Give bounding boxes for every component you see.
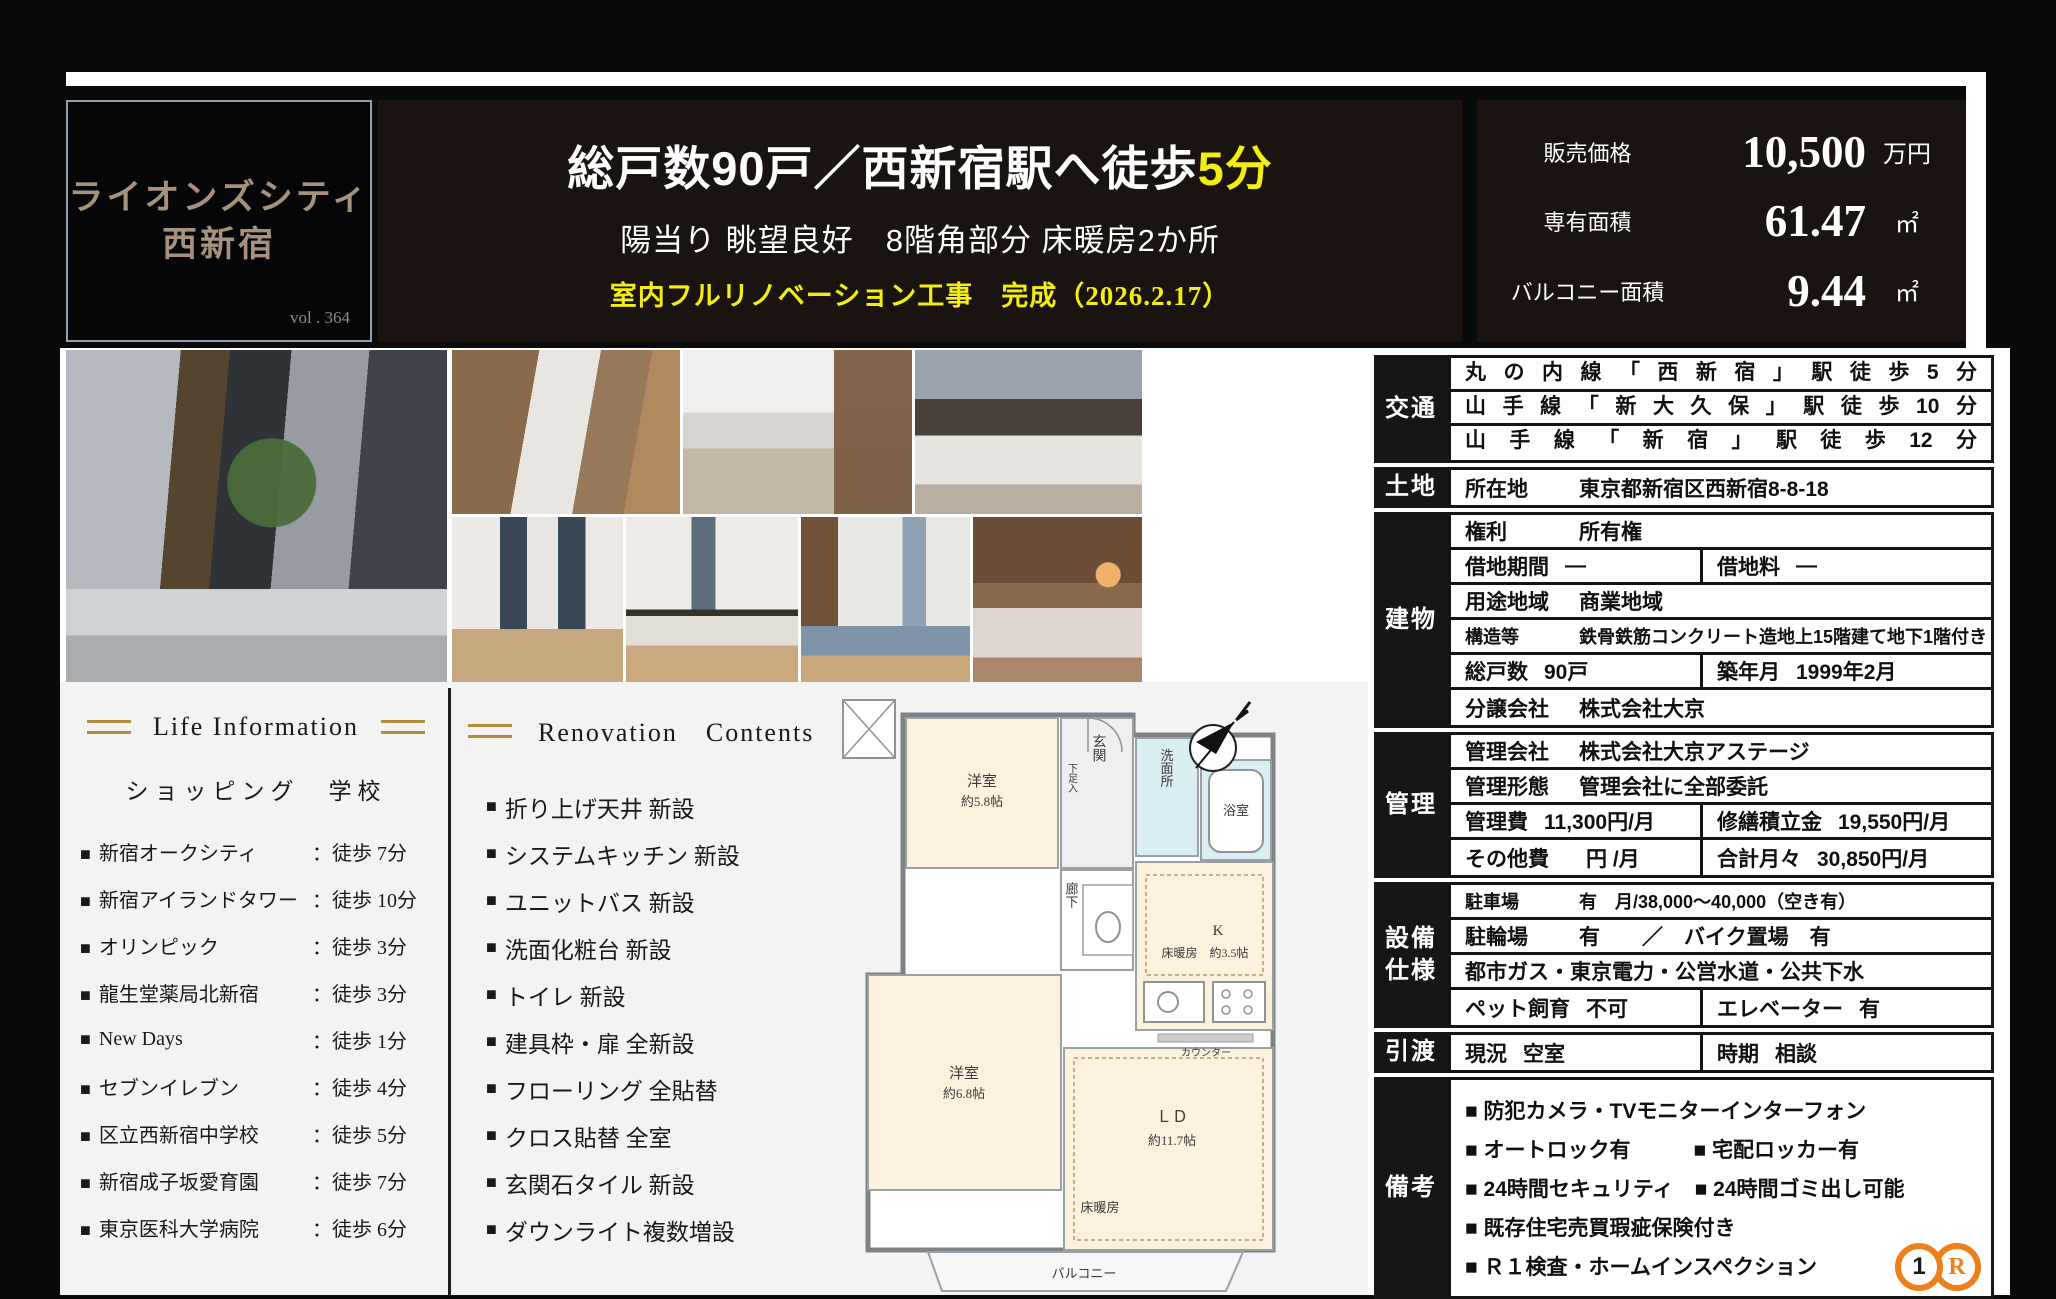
bullet-square-icon: ■ <box>486 796 497 817</box>
room1-size: 約5.8帖 <box>961 794 1003 809</box>
ld-size: 約11.7帖 <box>1148 1133 1196 1148</box>
spec-row: 管理費11,300円/月修繕積立金19,550円/月 <box>1451 805 1991 840</box>
life-info-item: ■新宿成子坂愛育園：徒歩 7分 <box>70 1157 442 1204</box>
bullet-square-icon: ■ <box>486 1172 497 1193</box>
renovation-item: ■玄関石タイル 新設 <box>486 1159 828 1206</box>
life-info-item: ■セブンイレブン：徒歩 4分 <box>70 1063 442 1110</box>
spec-group-rows: 丸の内線「西新宿」駅徒歩5分山手線「新大久保」駅徒歩10分山手線「新宿」駅徒歩1… <box>1448 355 1994 463</box>
spec-cell-value: 株式会社大京 <box>1579 693 1705 723</box>
headline-sub: 陽当り 眺望良好 8階角部分 床暖房2か所 <box>620 215 1220 260</box>
bullet-square-icon: ■ <box>486 843 497 864</box>
bathroom-label: 浴室 <box>1223 803 1249 818</box>
spec-cell-head: 管理費 <box>1465 806 1528 836</box>
spec-cell: 時期相談 <box>1703 1035 1991 1070</box>
entrance-label: 玄関 <box>1091 733 1107 763</box>
bullet-square-icon: ■ <box>80 1029 91 1049</box>
spec-cell-head: 借地期間 <box>1465 551 1549 581</box>
bullet-square-icon: ■ <box>80 844 91 864</box>
floor-plan: 洋室 約5.8帖 玄関 下足入 洗面所 浴室 廊下 K 床暖房 約3.5帖 カウ… <box>828 690 1373 1295</box>
spec-group-rows: 所在地東京都新宿区西新宿8-8-18 <box>1448 467 1994 508</box>
spec-cell-value: 有 月/38,000～40,000（空き有） <box>1579 888 1856 914</box>
spec-cell-head: 管理形態 <box>1465 771 1561 801</box>
renovation-item: ■クロス貼替 全室 <box>486 1112 828 1159</box>
bullet-square-icon: ■ <box>80 1220 91 1240</box>
spec-cell-head: 構造等 <box>1465 623 1561 649</box>
spec-cell-value: ― <box>1565 554 1586 578</box>
life-item-walk-time: ：徒歩 3分 <box>312 931 438 960</box>
spec-row: 所在地東京都新宿区西新宿8-8-18 <box>1451 470 1991 505</box>
bullet-square-icon: ■ <box>486 937 497 958</box>
stove-icon <box>1213 982 1265 1022</box>
photo-bedroom-1 <box>915 350 1142 514</box>
spec-cell: その他費 円 /月 <box>1451 840 1703 875</box>
spec-cell-head: ペット飼育 <box>1465 993 1570 1023</box>
spec-cell-value: 東京都新宿区西新宿8-8-18 <box>1579 473 1829 503</box>
renovation-item: ■ユニットバス 新設 <box>486 877 828 924</box>
life-item-name: ■New Days <box>80 1028 312 1051</box>
price-label: 販売価格 <box>1495 136 1680 168</box>
bullet-square-icon: ■ <box>486 1219 497 1240</box>
property-logo-box: ライオンズシティ 西新宿 vol . 364 <box>66 100 372 342</box>
renovation-item: ■システムキッチン 新設 <box>486 830 828 877</box>
property-name-line1: ライオンズシティ <box>68 174 369 221</box>
spec-cell-head: 分譲会社 <box>1465 693 1561 723</box>
spec-row: 権利所有権 <box>1451 515 1991 550</box>
property-spec-table: 交通丸の内線「西新宿」駅徒歩5分山手線「新大久保」駅徒歩10分山手線「新宿」駅徒… <box>1374 355 1994 1299</box>
shoe-box-label: 下足入 <box>1066 763 1078 793</box>
life-info-item: ■新宿オークシティ：徒歩 7分 <box>70 828 442 875</box>
renovation-item: ■洗面化粧台 新設 <box>486 924 828 971</box>
spec-cell-value: 都市ガス・東京電力・公営水道・公共下水 <box>1465 956 1864 986</box>
spec-row: その他費 円 /月合計月々30,850円/月 <box>1451 840 1991 875</box>
bedroom-68-room <box>868 975 1061 1190</box>
renovation-section: Renovation Contents ■折り上げ天井 新設■システムキッチン … <box>468 712 828 1253</box>
transport-line: 丸の内線「西新宿」駅徒歩5分 <box>1451 358 1991 392</box>
photo-building-exterior <box>66 350 447 682</box>
spec-cell-head: 駐輪場 <box>1465 921 1561 951</box>
spec-cell-value: 1999年2月 <box>1796 656 1896 686</box>
headline-renovation-note: 室内フルリノベーション工事 完成（2026.2.17） <box>610 274 1230 313</box>
photo-room-windows <box>452 517 623 682</box>
life-item-name: ■龍生堂薬局北新宿 <box>80 978 312 1007</box>
bullet-square-icon: ■ <box>80 1173 91 1193</box>
remarks-line: ■ オートロック有 ■ 宅配ロッカー有 <box>1465 1134 1977 1164</box>
spec-cell: ペット飼育不可 <box>1451 990 1703 1025</box>
life-item-name: ■オリンピック <box>80 931 312 960</box>
photo-living-room-1 <box>683 350 912 514</box>
bedroom-58-room <box>906 718 1058 868</box>
spec-group-label: 交通 <box>1374 355 1448 463</box>
price-row: 専有面積61.47㎡ <box>1495 195 1948 247</box>
spec-cell: 借地料― <box>1703 550 1991 582</box>
gold-rule-icon <box>468 724 512 738</box>
price-unit: 万円 <box>1866 134 1948 169</box>
life-information-list: ■新宿オークシティ：徒歩 7分■新宿アイランドタワー：徒歩 10分■オリンピック… <box>70 828 442 1251</box>
spec-row: 用途地域商業地域 <box>1451 585 1991 620</box>
spec-cell-value: 商業地域 <box>1579 586 1663 616</box>
spec-cell-value: 90戸 <box>1544 656 1588 686</box>
spec-cell-head: 現況 <box>1465 1038 1507 1068</box>
price-label: バルコニー面積 <box>1495 275 1680 307</box>
spec-group-rows: 権利所有権借地期間―借地料―用途地域商業地域構造等鉄骨鉄筋コンクリート造地上15… <box>1448 512 1994 728</box>
gold-rule-icon <box>381 720 425 734</box>
spec-group-label: 設備仕様 <box>1374 882 1448 1028</box>
bullet-square-icon: ■ <box>486 1125 497 1146</box>
spec-group: 管理管理会社株式会社大京アステージ管理形態管理会社に全部委託管理費11,300円… <box>1374 732 1994 878</box>
spec-cell: 総戸数90戸 <box>1451 655 1703 687</box>
price-unit: ㎡ <box>1866 273 1948 308</box>
price-label: 専有面積 <box>1495 205 1680 237</box>
section-divider <box>448 688 451 1295</box>
life-item-name: ■区立西新宿中学校 <box>80 1119 312 1148</box>
elevator-shaft-icon <box>843 700 895 758</box>
life-information-title-row: Life Information <box>70 712 442 742</box>
life-item-walk-time: ：徒歩 1分 <box>312 1025 438 1054</box>
counter-icon <box>1158 1034 1253 1042</box>
room1-label: 洋室 <box>967 773 997 790</box>
spec-cell: 合計月々30,850円/月 <box>1703 840 1991 875</box>
kitchen-floor-heating-label: 床暖房 約3.5帖 <box>1161 945 1248 960</box>
headline-box: 総戸数90戸／西新宿駅へ徒歩5分 陽当り 眺望良好 8階角部分 床暖房2か所 室… <box>378 100 1462 342</box>
remarks-line: ■ 防犯カメラ・TVモニターインターフォン <box>1465 1095 1977 1125</box>
room2-size: 約6.8帖 <box>943 1086 985 1101</box>
bullet-square-icon: ■ <box>80 1126 91 1146</box>
spec-row: 駐輪場有 ／ バイク置場 有 <box>1451 920 1991 955</box>
spec-cell: 修繕積立金19,550円/月 <box>1703 805 1991 837</box>
spec-row: 都市ガス・東京電力・公営水道・公共下水 <box>1451 955 1991 990</box>
spec-cell: 築年月1999年2月 <box>1703 655 1991 687</box>
room2-label: 洋室 <box>949 1065 979 1082</box>
spec-cell: エレベーター有 <box>1703 990 1991 1025</box>
life-info-item: ■オリンピック：徒歩 3分 <box>70 922 442 969</box>
life-item-name: ■東京医科大学病院 <box>80 1213 312 1242</box>
spec-cell-head: その他費 <box>1465 843 1549 873</box>
renovation-list: ■折り上げ天井 新設■システムキッチン 新設■ユニットバス 新設■洗面化粧台 新… <box>468 783 828 1253</box>
headline-main: 総戸数90戸／西新宿駅へ徒歩5分 <box>567 130 1272 199</box>
life-info-item: ■区立西新宿中学校：徒歩 5分 <box>70 1110 442 1157</box>
spec-group-rows: 管理会社株式会社大京アステージ管理形態管理会社に全部委託管理費11,300円/月… <box>1448 732 1994 878</box>
spec-cell-value: 有 <box>1859 993 1880 1023</box>
counter-label: カウンター <box>1181 1047 1231 1059</box>
spec-group: 引渡現況空室時期相談 <box>1374 1032 1994 1073</box>
life-item-walk-time: ：徒歩 6分 <box>312 1213 438 1242</box>
transport-line: 山手線「新大久保」駅徒歩10分 <box>1451 392 1991 426</box>
bullet-square-icon: ■ <box>486 1078 497 1099</box>
bullet-square-icon: ■ <box>80 985 91 1005</box>
bullet-square-icon: ■ <box>486 984 497 1005</box>
spec-cell-value: 所有権 <box>1579 516 1642 546</box>
property-name-line2: 西新宿 <box>162 221 276 268</box>
gold-rule-icon <box>87 720 131 734</box>
life-item-walk-time: ：徒歩 10分 <box>312 884 438 913</box>
spec-cell-head: 築年月 <box>1717 656 1780 686</box>
spec-cell-value: 11,300円/月 <box>1544 806 1655 836</box>
bullet-square-icon: ■ <box>80 938 91 958</box>
spec-group: 交通丸の内線「西新宿」駅徒歩5分山手線「新大久保」駅徒歩10分山手線「新宿」駅徒… <box>1374 355 1994 463</box>
washroom-label: 洗面所 <box>1159 749 1174 788</box>
spec-cell-head: 総戸数 <box>1465 656 1528 686</box>
price-unit: ㎡ <box>1866 204 1948 239</box>
spec-row: 総戸数90戸築年月1999年2月 <box>1451 655 1991 690</box>
top-white-stripe <box>66 72 1986 86</box>
spec-cell-head: 管理会社 <box>1465 736 1561 766</box>
life-item-walk-time: ：徒歩 4分 <box>312 1072 438 1101</box>
spec-cell-value: ― <box>1796 554 1817 578</box>
spec-group: 土地所在地東京都新宿区西新宿8-8-18 <box>1374 467 1994 508</box>
life-information-section: Life Information ショッピング 学校 ■新宿オークシティ：徒歩 … <box>70 712 442 1251</box>
spec-cell-head: 合計月々 <box>1717 843 1801 873</box>
spec-cell-value: 空室 <box>1523 1038 1565 1068</box>
spec-group: 設備仕様駐車場有 月/38,000～40,000（空き有）駐輪場有 ／ バイク置… <box>1374 882 1994 1028</box>
spec-cell-head: 修繕積立金 <box>1717 806 1822 836</box>
life-info-item: ■龍生堂薬局北新宿：徒歩 3分 <box>70 969 442 1016</box>
spec-row: 管理会社株式会社大京アステージ <box>1451 735 1991 770</box>
spec-cell: 借地期間― <box>1451 550 1703 582</box>
spec-cell-value: 19,550円/月 <box>1838 806 1950 836</box>
spec-group-label: 備考 <box>1374 1077 1448 1299</box>
spec-cell-head: 時期 <box>1717 1038 1759 1068</box>
renovation-item: ■建具枠・扉 全新設 <box>486 1018 828 1065</box>
photo-bedroom-2 <box>973 517 1142 682</box>
bullet-square-icon: ■ <box>80 891 91 911</box>
spec-group-label: 土地 <box>1374 467 1448 508</box>
spec-cell-value: 円 /月 <box>1565 843 1640 873</box>
toilet-icon <box>1096 912 1120 942</box>
spec-cell-value: 30,850円/月 <box>1817 843 1929 873</box>
life-item-walk-time: ：徒歩 3分 <box>312 978 438 1007</box>
spec-row: 分譲会社株式会社大京 <box>1451 690 1991 725</box>
life-information-subtitle: ショッピング 学校 <box>70 772 442 806</box>
spec-group-label: 管理 <box>1374 732 1448 878</box>
spec-cell-head: 駐車場 <box>1465 888 1561 914</box>
spec-cell-value: 相談 <box>1775 1038 1817 1068</box>
photo-kitchen <box>626 517 798 682</box>
kitchen-label: K <box>1213 923 1224 939</box>
life-info-item: ■New Days：徒歩 1分 <box>70 1016 442 1063</box>
spec-group-label: 建物 <box>1374 512 1448 728</box>
spec-row: 駐車場有 月/38,000～40,000（空き有） <box>1451 885 1991 920</box>
spec-group: 建物権利所有権借地期間―借地料―用途地域商業地域構造等鉄骨鉄筋コンクリート造地上… <box>1374 512 1994 728</box>
ld-floor-heating-label: 床暖房 <box>1080 1200 1119 1215</box>
r1-inspection-logo: 1 R <box>1895 1238 2015 1296</box>
spec-row: ペット飼育不可エレベーター有 <box>1451 990 1991 1025</box>
remarks-line: ■ 24時間セキュリティ ■ 24時間ゴミ出し可能 <box>1465 1173 1977 1203</box>
life-info-item: ■新宿アイランドタワー：徒歩 10分 <box>70 875 442 922</box>
life-item-name: ■新宿オークシティ <box>80 837 312 866</box>
price-row: 販売価格10,500万円 <box>1495 126 1948 178</box>
spec-cell-value: 管理会社に全部委託 <box>1579 771 1768 801</box>
spec-row: 現況空室時期相談 <box>1451 1035 1991 1070</box>
headline-main-white: 総戸数90戸／西新宿駅へ徒歩 <box>567 142 1197 195</box>
spec-row: 構造等鉄骨鉄筋コンクリート造地上15階建て地下1階付き 8階 <box>1451 620 1991 655</box>
bullet-square-icon: ■ <box>80 1079 91 1099</box>
spec-cell: 管理費11,300円/月 <box>1451 805 1703 837</box>
renovation-title-row: Renovation Contents <box>468 712 828 749</box>
spec-group-rows: 現況空室時期相談 <box>1448 1032 1994 1073</box>
renovation-item: ■フローリング 全貼替 <box>486 1065 828 1112</box>
spec-cell-head: エレベーター <box>1717 993 1843 1023</box>
flyer-volume: vol . 364 <box>290 308 350 328</box>
renovation-title: Renovation Contents <box>538 712 814 749</box>
spec-cell-head: 借地料 <box>1717 551 1780 581</box>
life-information-title: Life Information <box>153 712 359 742</box>
life-item-walk-time: ：徒歩 7分 <box>312 837 438 866</box>
price-row: バルコニー面積9.44㎡ <box>1495 265 1948 317</box>
life-item-name: ■新宿成子坂愛育園 <box>80 1166 312 1195</box>
renovation-item: ■ダウンライト複数増設 <box>486 1206 828 1253</box>
life-item-name: ■新宿アイランドタワー <box>80 884 312 913</box>
sink-icon <box>1144 982 1204 1022</box>
renovation-item: ■折り上げ天井 新設 <box>486 783 828 830</box>
bullet-square-icon: ■ <box>486 1031 497 1052</box>
spec-cell-head: 用途地域 <box>1465 586 1561 616</box>
price-value: 9.44 <box>1680 265 1866 317</box>
life-info-item: ■東京医科大学病院：徒歩 6分 <box>70 1204 442 1251</box>
price-value: 10,500 <box>1680 126 1866 178</box>
flyer-page: ライオンズシティ 西新宿 vol . 364 総戸数90戸／西新宿駅へ徒歩5分 … <box>0 0 2056 1299</box>
bullet-square-icon: ■ <box>486 890 497 911</box>
life-item-name: ■セブンイレブン <box>80 1072 312 1101</box>
spec-cell-value: 株式会社大京アステージ <box>1579 736 1810 766</box>
renovation-item: ■トイレ 新設 <box>486 971 828 1018</box>
corridor-label: 廊下 <box>1064 881 1079 908</box>
right-white-stripe <box>1966 86 1986 348</box>
spec-cell-head: 所在地 <box>1465 473 1561 503</box>
spec-cell-head: 権利 <box>1465 516 1561 546</box>
r1-logo-circle-1: 1 <box>1895 1243 1943 1291</box>
photo-hallway-closet <box>452 350 680 514</box>
transport-line: 山手線「新宿」駅徒歩12分 <box>1451 426 1991 460</box>
spec-cell-value: 有 ／ バイク置場 有 <box>1579 921 1831 951</box>
spec-cell-value: 不可 <box>1586 993 1628 1023</box>
price-value: 61.47 <box>1680 195 1866 247</box>
spec-row: 借地期間―借地料― <box>1451 550 1991 585</box>
balcony-label: バルコニー <box>1052 1266 1117 1281</box>
life-item-walk-time: ：徒歩 7分 <box>312 1166 438 1195</box>
headline-main-highlight: 5分 <box>1198 142 1273 195</box>
living-dining-room <box>1064 1048 1273 1250</box>
spec-cell-value: 鉄骨鉄筋コンクリート造地上15階建て地下1階付き 8階 <box>1579 623 1991 649</box>
spec-cell: 現況空室 <box>1451 1035 1703 1070</box>
photo-living-room-2 <box>801 517 970 682</box>
ld-label: ＬＤ <box>1156 1109 1188 1126</box>
spec-row: 管理形態管理会社に全部委託 <box>1451 770 1991 805</box>
price-panel: 販売価格10,500万円専有面積61.47㎡バルコニー面積9.44㎡ <box>1477 100 1966 342</box>
life-item-walk-time: ：徒歩 5分 <box>312 1119 438 1148</box>
spec-group-label: 引渡 <box>1374 1032 1448 1073</box>
spec-group-rows: 駐車場有 月/38,000～40,000（空き有）駐輪場有 ／ バイク置場 有都… <box>1448 882 1994 1028</box>
